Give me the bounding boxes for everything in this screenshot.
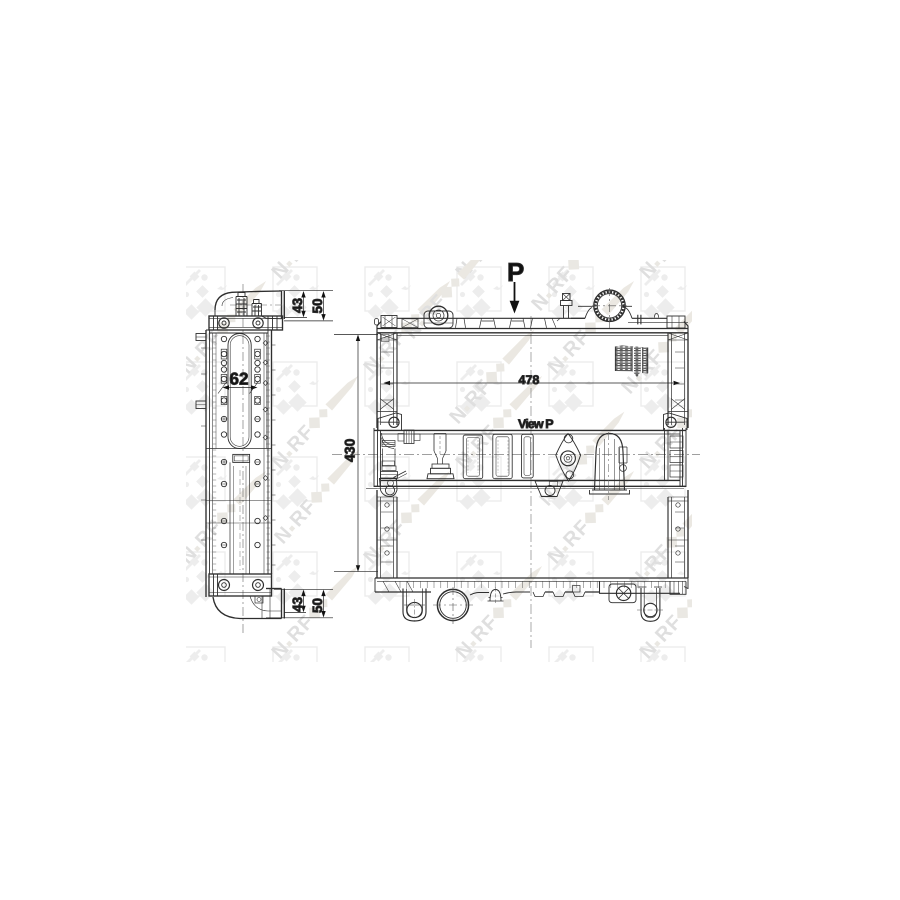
svg-text:430: 430 [342, 438, 358, 462]
svg-text:50: 50 [310, 598, 325, 613]
svg-text:P: P [507, 257, 524, 287]
svg-text:478: 478 [519, 373, 540, 387]
svg-text:View P: View P [518, 417, 553, 431]
svg-text:43: 43 [290, 596, 305, 612]
svg-text:43: 43 [290, 297, 305, 313]
svg-text:50: 50 [310, 298, 325, 313]
svg-text:62: 62 [230, 370, 249, 389]
